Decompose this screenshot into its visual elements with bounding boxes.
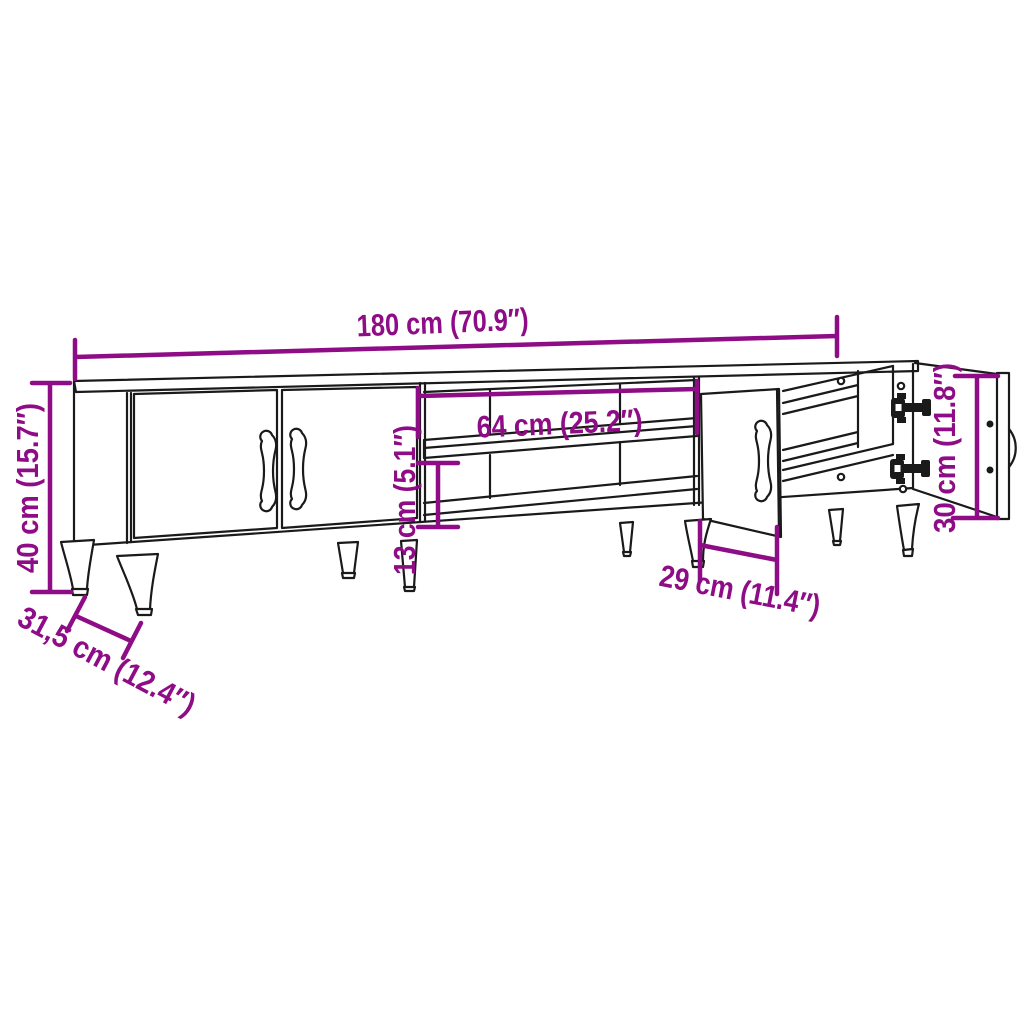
overall-height-label: 40 cm (15.7″) [10, 403, 45, 573]
leg-back-2 [620, 522, 633, 556]
leg-front-left [61, 540, 94, 595]
door-width-label: 29 cm (11.4″) [657, 558, 824, 623]
leg-front-right [897, 504, 919, 556]
compartment-width-label: 64 cm (25.2″) [476, 402, 643, 444]
hinge-pin-top [987, 421, 994, 428]
hinge-pin-bottom [987, 467, 994, 474]
door-height-label: 30 cm (11.8″) [927, 363, 962, 533]
dimension-diagram: 180 cm (70.9″) 40 cm (15.7″) 31,5 cm (12… [0, 0, 1024, 1024]
leg-back-1 [338, 542, 358, 578]
door-left [134, 390, 277, 538]
shelf-pin-hole [838, 474, 844, 480]
shelf-pin-hole [838, 378, 844, 384]
furniture-line-art [61, 361, 1016, 615]
cabinet-top-edge [74, 361, 918, 392]
overall-depth-label: 31,5 cm (12.4″) [12, 599, 201, 722]
leg-front-left-2 [117, 554, 158, 615]
hinge-bottom-icon [890, 454, 930, 484]
hinge-top-icon [891, 393, 931, 423]
overall-width-label: 180 cm (70.9″) [356, 302, 529, 344]
compartment-floor [424, 476, 697, 515]
shelf-pin-hole [898, 383, 904, 389]
door-open-side-panel [997, 373, 1009, 519]
shelf-pin-hole [900, 486, 906, 492]
leg-back-3 [829, 509, 843, 545]
furniture-diagram: 180 cm (70.9″) 40 cm (15.7″) 31,5 cm (12… [0, 0, 1024, 1024]
compartment-height-label: 13 cm (5.1″) [387, 425, 422, 575]
left-side-panel-edge [127, 393, 131, 543]
